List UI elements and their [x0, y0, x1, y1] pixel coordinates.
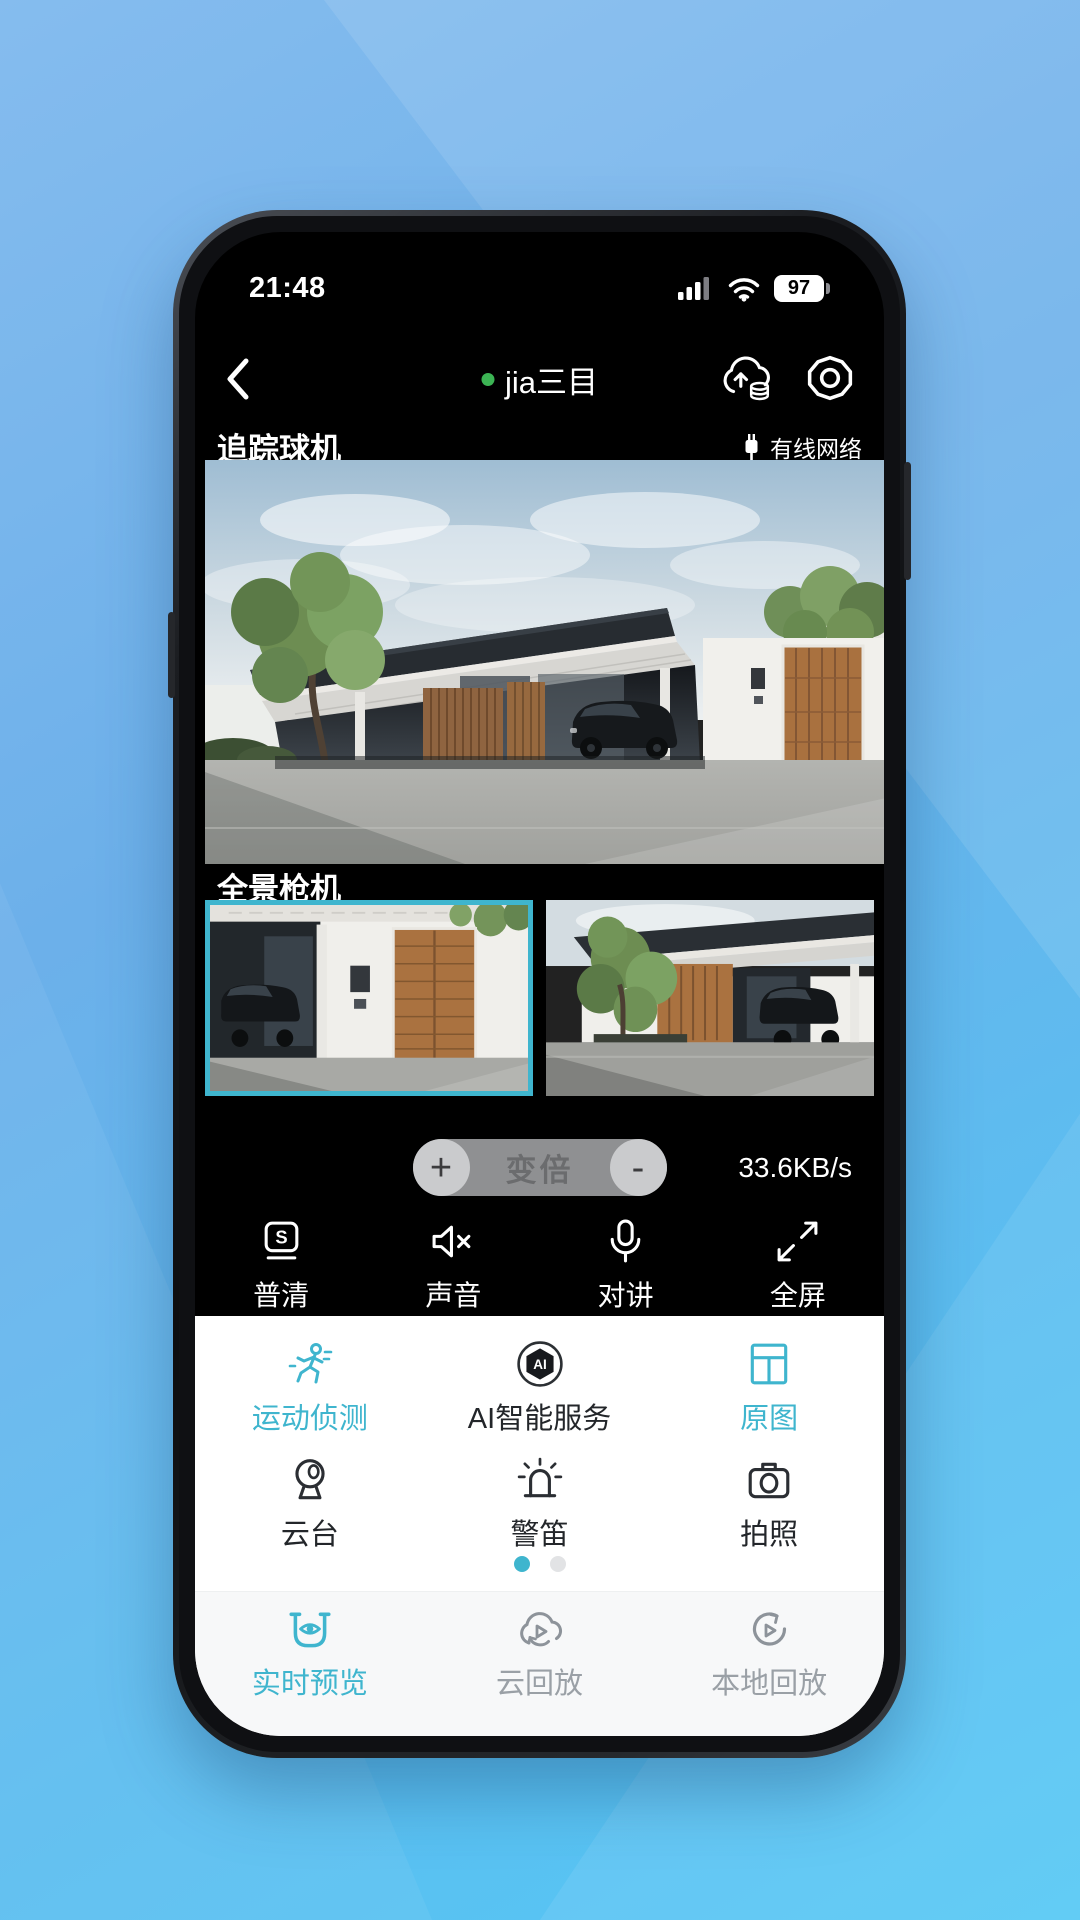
nav-live-preview[interactable]: 实时预览	[195, 1592, 425, 1736]
status-bar: 21:48 97	[195, 272, 884, 305]
status-time: 21:48	[249, 272, 326, 305]
bitrate-value: 33.6KB/s	[738, 1152, 852, 1184]
house-scene	[205, 460, 884, 864]
volume-button	[168, 612, 175, 698]
cellular-signal-icon	[678, 275, 714, 302]
header: jia三目	[195, 348, 884, 410]
pager-dot-active[interactable]	[514, 1556, 530, 1572]
back-chevron-icon	[225, 357, 251, 401]
zoom-pill: + 变倍 -	[413, 1139, 667, 1196]
original-image-button[interactable]: 原图	[654, 1338, 884, 1437]
battery-percent: 97	[788, 277, 810, 300]
ai-service-label: AI智能服务	[468, 1395, 611, 1437]
ptz-button[interactable]: 云台	[195, 1454, 425, 1553]
talk-label: 对讲	[598, 1274, 654, 1314]
video-toolbar: S 普清 声音	[195, 1218, 884, 1322]
ai-badge: AI	[533, 1357, 547, 1372]
thumb-scene-door	[205, 900, 533, 1096]
sd-quality-icon: S	[258, 1218, 305, 1265]
motion-detect-icon	[286, 1340, 334, 1388]
local-playback-icon	[745, 1610, 793, 1652]
panorama-thumb-1-selected[interactable]	[205, 900, 533, 1096]
original-image-label: 原图	[740, 1395, 798, 1437]
talk-button[interactable]: 对讲	[540, 1218, 712, 1322]
panorama-thumbnails	[205, 900, 874, 1096]
fullscreen-icon	[774, 1218, 821, 1265]
ai-service-icon: AI	[516, 1340, 564, 1388]
fullscreen-label: 全屏	[770, 1274, 826, 1314]
siren-label: 警笛	[511, 1511, 569, 1553]
sound-label: 声音	[425, 1274, 481, 1314]
cloud-playback-icon	[514, 1610, 566, 1652]
fullscreen-button[interactable]: 全屏	[712, 1218, 884, 1322]
nav-cloud-playback-label: 云回放	[496, 1660, 583, 1702]
back-button[interactable]	[225, 356, 255, 402]
motion-detect-label: 运动侦测	[252, 1395, 368, 1437]
phone-screen: 21:48 97	[195, 232, 884, 1736]
wifi-icon	[727, 276, 761, 302]
speaker-muted-icon	[430, 1218, 477, 1265]
quality-button[interactable]: S 普清	[195, 1218, 367, 1322]
quality-label: 普清	[253, 1274, 309, 1314]
motion-detect-button[interactable]: 运动侦测	[195, 1338, 425, 1437]
online-status-dot	[481, 373, 494, 386]
network-label: 有线网络	[770, 430, 862, 464]
device-title: jia三目	[481, 348, 598, 410]
siren-button[interactable]: 警笛	[425, 1454, 655, 1553]
nav-local-playback[interactable]: 本地回放	[654, 1592, 884, 1736]
ai-service-button[interactable]: AI AI智能服务	[425, 1338, 655, 1437]
sound-button[interactable]: 声音	[367, 1218, 539, 1322]
thumb-scene-gate	[546, 900, 874, 1096]
feature-panel: 运动侦测 AI AI智能服务	[195, 1316, 884, 1736]
bottom-nav: 实时预览 云回放	[195, 1591, 884, 1736]
nav-live-preview-label: 实时预览	[252, 1660, 368, 1702]
pager-dot[interactable]	[550, 1556, 566, 1572]
quality-badge: S	[275, 1227, 287, 1248]
snapshot-button[interactable]: 拍照	[654, 1454, 884, 1553]
zoom-label: 变倍	[506, 1145, 574, 1190]
phone-bezel: 21:48 97	[179, 216, 900, 1752]
power-button	[904, 462, 911, 580]
panel-pager-dots[interactable]	[195, 1556, 884, 1572]
ptz-icon	[286, 1456, 334, 1504]
siren-icon	[516, 1456, 564, 1504]
settings-gear-icon	[806, 354, 854, 402]
zoom-in-button[interactable]: +	[413, 1139, 470, 1196]
nav-cloud-playback[interactable]: 云回放	[425, 1592, 655, 1736]
phone-frame: 21:48 97	[173, 210, 906, 1758]
tracking-camera-video[interactable]	[205, 460, 884, 864]
settings-button[interactable]	[806, 354, 854, 407]
network-status: 有线网络	[741, 430, 862, 464]
battery-icon: 97	[774, 275, 830, 302]
microphone-icon	[602, 1218, 649, 1265]
snapshot-icon	[745, 1456, 793, 1504]
snapshot-label: 拍照	[740, 1511, 798, 1553]
page-title: jia三目	[505, 357, 598, 402]
cloud-storage-button[interactable]	[718, 354, 774, 407]
cloud-storage-icon	[718, 354, 774, 402]
original-image-icon	[745, 1340, 793, 1388]
panorama-thumb-2[interactable]	[546, 900, 874, 1096]
nav-local-playback-label: 本地回放	[711, 1660, 827, 1702]
ptz-label: 云台	[281, 1511, 339, 1553]
zoom-out-button[interactable]: -	[610, 1139, 667, 1196]
wired-network-icon	[741, 432, 761, 462]
zoom-control-row: + 变倍 - 33.6KB/s	[195, 1138, 884, 1198]
live-preview-icon	[286, 1610, 334, 1652]
